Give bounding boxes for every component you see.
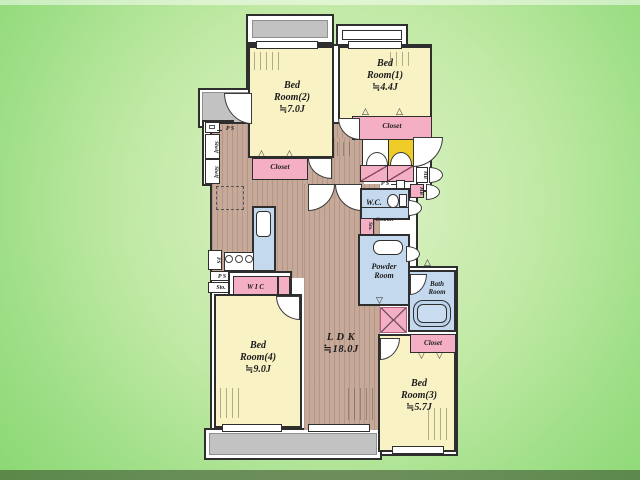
closet-door-marker: ▽ [418,352,425,361]
ps-icon [209,125,215,129]
pipe-space-box: PS [208,250,222,270]
stove-burner [235,255,243,263]
frame-edge-top [0,0,640,5]
meter-box: MB [416,167,428,183]
closet-bedroom3: Closet [410,334,456,353]
vanity-sink [373,240,403,255]
floor-plan: Bed Room(2) ≒7.0J △ △ Closet Bed Room(1)… [0,0,640,480]
frame-edge-bottom [0,470,640,480]
shoe-cabinet-door [361,166,388,181]
balcony-rail [342,30,402,40]
wic-label: W I C [234,283,277,291]
mb-label: MB [417,168,427,182]
room-label-bedroom2: Bed Room(2) ≒7.0J [252,80,332,115]
mb-label: MB [411,185,423,197]
bathtub [413,300,451,327]
kitchen-sink [256,211,271,237]
grain-marks [348,388,374,420]
wc-counter: Counter [362,207,408,218]
closet-label: Closet [353,122,431,131]
door-marker: ▽ [376,297,383,306]
closet-bedroom2: Closet [252,158,308,180]
balcony-floor [209,433,377,455]
sto-label: Sto. [361,219,373,234]
shelf-box: Shelf [205,134,220,159]
ps-label: P S [221,126,239,132]
balcony-bottom [204,428,382,460]
refrigerator-space [216,186,244,210]
room-label-bedroom3: Bed Room(3) ≒5.7J [382,378,456,413]
counter-label: Counter [376,217,395,223]
room-label-bath: Bath Room [423,280,451,297]
room-label-ldk: L D K ≒18.0J [302,332,380,357]
room-powder: Powder Room [358,234,410,306]
grain-marks [337,142,353,156]
shelf-label: Shelf [206,135,219,158]
washing-machine-space [380,307,407,333]
door-marker: △ [424,259,431,268]
ps-pointer-line [217,130,222,131]
shoe-cabinet-door [388,166,414,181]
room-label-bedroom4: Bed Room(4) ≒9.0J [218,340,298,375]
balcony-floor [252,20,328,38]
shelf-box: Shelf [205,159,220,184]
storage-box: Sto. [360,218,374,235]
door-arc-front-entrance [413,137,443,167]
meter-box: MB [410,184,424,198]
pipe-space-box [205,122,220,133]
grain-marks [254,52,280,70]
ps-label: PS [209,251,221,269]
shoe-cabinet [360,165,414,182]
door-arc-wc [408,200,422,216]
balcony-bedroom2 [246,14,334,44]
stove-burner [225,255,233,263]
shelf-label: Shelf [206,160,219,183]
room-wc: W.C. Counter [360,188,410,220]
window [222,424,282,432]
closet-door-marker: ▽ [436,352,443,361]
window [348,41,402,49]
stove [224,252,254,271]
toilet-bowl [387,194,399,208]
closet-label: Closet [253,163,307,172]
meter-box-door [429,167,443,183]
pipe-space-box [396,180,405,189]
bathtub-inner [417,304,447,323]
window [308,424,370,432]
meter-box-door [426,184,440,200]
closet-label: Closet [411,339,455,347]
toilet-tank [399,194,407,207]
room-label-bedroom1: Bed Room(1) ≒4.4J [340,58,430,93]
window [256,41,318,49]
stove-burner [245,255,253,263]
room-label-powder: Powder Room [360,262,408,281]
grain-marks [220,388,244,418]
window [392,446,444,454]
